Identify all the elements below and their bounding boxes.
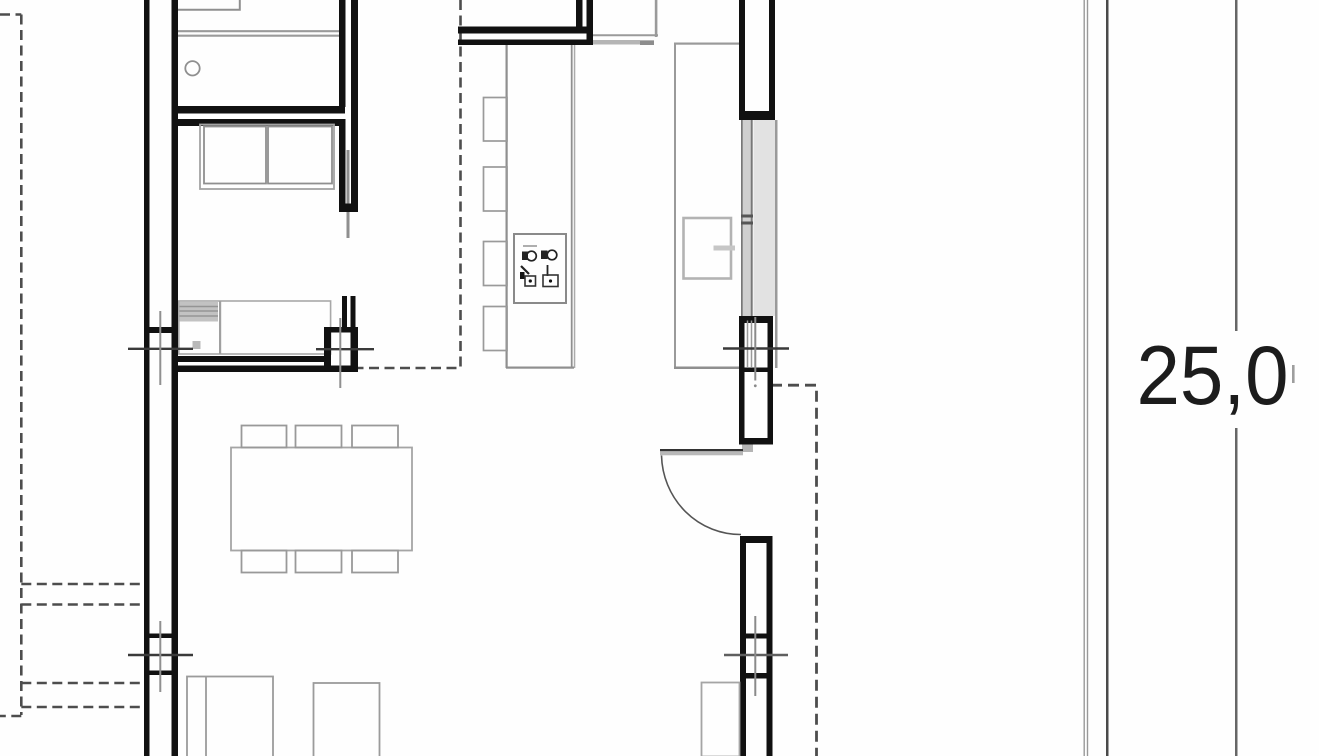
svg-text:25,0: 25,0 [1137,328,1289,422]
